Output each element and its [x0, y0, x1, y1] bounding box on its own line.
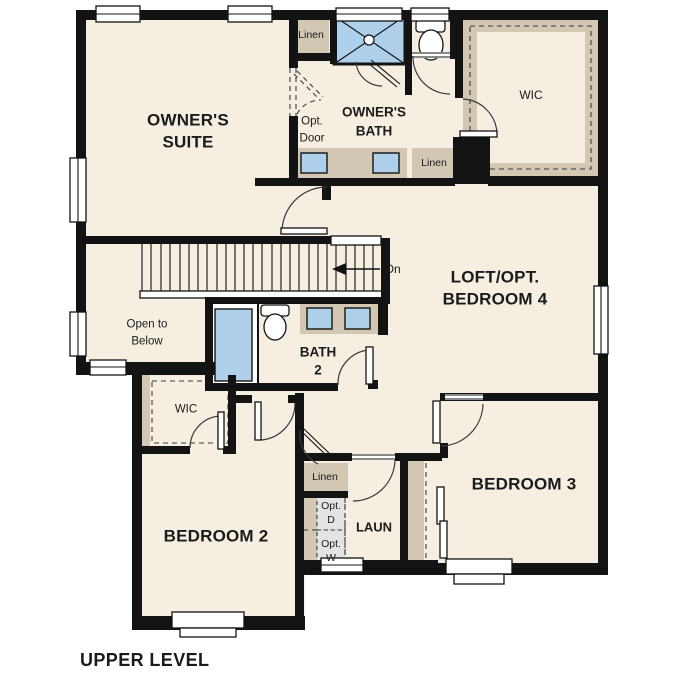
- window: [594, 286, 608, 354]
- floor-plan: OWNER'S SUITE Linen Opt. Door OWNER'S BA…: [0, 0, 687, 687]
- window: [446, 559, 512, 584]
- room-label-owners-bath-line1: OWNER'S: [342, 105, 406, 119]
- page-title: UPPER LEVEL: [80, 650, 209, 671]
- window: [70, 158, 86, 222]
- window: [172, 612, 244, 637]
- annotation-open-to-below-line1: Open to: [127, 319, 168, 331]
- floor-plan-drawing: [0, 0, 687, 687]
- room-label-bath2-line2: 2: [314, 363, 322, 377]
- annotation-opt-dryer-line1: Opt.: [321, 501, 341, 512]
- annotation-open-to-below-line2: Below: [131, 336, 162, 348]
- annotation-opt-dryer-line2: D: [327, 515, 335, 526]
- room-label-bedroom2: BEDROOM 2: [164, 528, 269, 545]
- room-label-owners-suite-line1: OWNER'S: [147, 112, 229, 129]
- room-label-wic-owners: WIC: [519, 89, 542, 101]
- annotation-opt-door-line2: Door: [300, 133, 325, 145]
- closet-label-linen-hall: Linen: [312, 472, 338, 483]
- room-label-laundry: LAUN: [356, 521, 392, 534]
- stair-rail: [140, 291, 385, 298]
- room-label-wic-bedroom2: WIC: [175, 404, 197, 416]
- window: [228, 6, 272, 22]
- room-label-bedroom3: BEDROOM 3: [472, 476, 577, 493]
- room-label-bath2-line1: BATH: [300, 345, 337, 359]
- room-label-loft-line2: BEDROOM 4: [443, 291, 548, 308]
- room-label-owners-bath-line2: BATH: [356, 124, 393, 138]
- bedroom3-closet-shelf: [408, 461, 424, 560]
- stair-landing: [331, 236, 381, 245]
- stairs-dn-label: Dn: [385, 263, 400, 275]
- window: [90, 360, 126, 375]
- bathtub-fixture: [209, 303, 258, 387]
- window: [96, 6, 140, 22]
- room-label-loft-line1: LOFT/OPT.: [451, 269, 540, 286]
- annotation-opt-washer-line2: W: [326, 553, 336, 564]
- window: [411, 8, 449, 21]
- closet-label-linen-upper: Linen: [298, 30, 324, 41]
- annotation-opt-washer-line1: Opt.: [321, 539, 341, 550]
- window: [70, 312, 86, 356]
- window: [336, 8, 402, 21]
- room-label-owners-suite-line2: SUITE: [162, 134, 213, 151]
- closet-label-linen-bath: Linen: [421, 158, 447, 169]
- annotation-opt-door-line1: Opt.: [301, 116, 323, 128]
